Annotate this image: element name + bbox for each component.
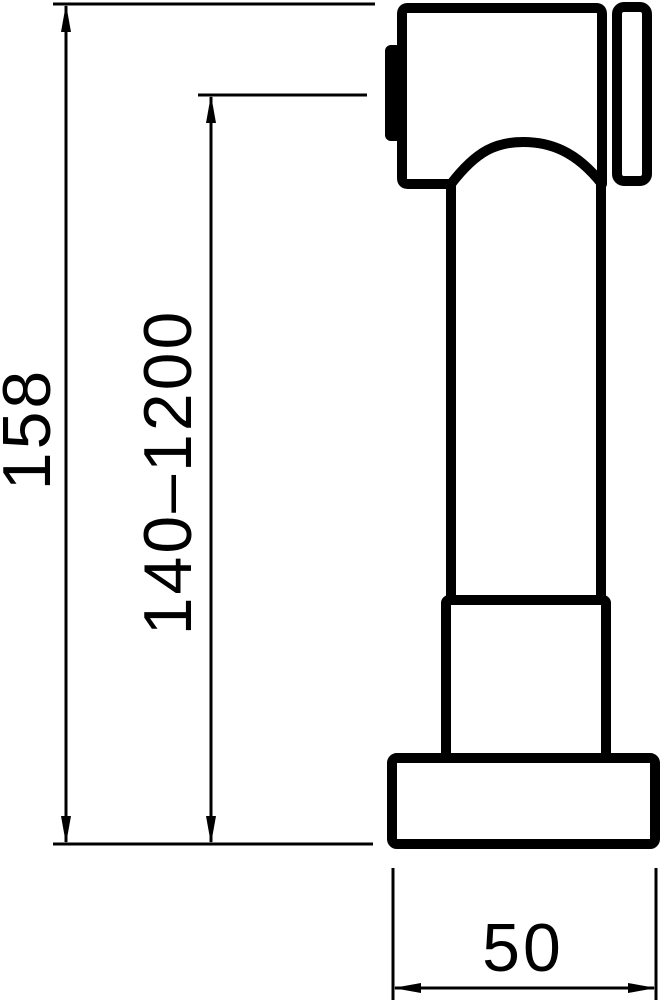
base-flange (392, 758, 655, 844)
fixture-outline (385, 7, 655, 844)
technical-drawing-canvas: 158 140–1200 50 (0, 0, 663, 1000)
label-overall-height: 158 (0, 368, 65, 490)
drawing-svg: 158 140–1200 50 (0, 0, 663, 1000)
label-base-width: 50 (482, 910, 564, 986)
label-mounting-range: 140–1200 (130, 309, 206, 636)
arrow-base-right (628, 983, 656, 993)
arrow-overall-bottom (61, 816, 71, 844)
arrow-overall-top (61, 4, 71, 32)
arrow-range-bottom (206, 816, 216, 844)
arrow-range-top (206, 95, 216, 123)
arrow-base-left (393, 983, 421, 993)
wall-bracket-plate (617, 7, 647, 181)
spray-head (402, 8, 602, 184)
mounting-sleeve (446, 600, 606, 760)
